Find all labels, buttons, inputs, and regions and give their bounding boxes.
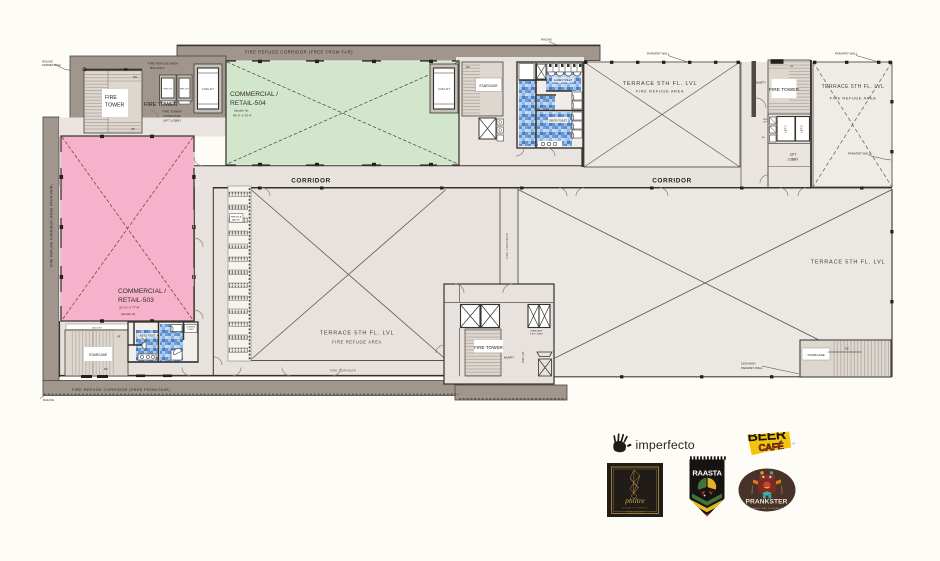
svg-text:TM: TM	[792, 443, 795, 446]
svg-text:LOBBY: LOBBY	[788, 158, 800, 162]
svg-text:LADIES TOILET: LADIES TOILET	[554, 79, 573, 82]
svg-text:RAILING: RAILING	[541, 38, 552, 42]
svg-text:ABOVE: ABOVE	[232, 219, 240, 222]
svg-text:imperfecto: imperfecto	[636, 438, 695, 452]
svg-text:STAIRCASE: STAIRCASE	[163, 114, 180, 118]
svg-text:DN: DN	[845, 348, 849, 351]
svg-text:FIRE TOWER: FIRE TOWER	[769, 87, 799, 93]
svg-text:STAIRCASE: STAIRCASE	[530, 330, 543, 333]
svg-text:RAASTA: RAASTA	[692, 469, 722, 478]
svg-text:CAR LIFT: CAR LIFT	[202, 87, 214, 91]
svg-text:/LIFT LOBBY: /LIFT LOBBY	[530, 334, 544, 336]
svg-text:TERRACE 5TH FL. LVL: TERRACE 5TH FL. LVL	[811, 260, 886, 266]
svg-text:DN: DN	[466, 66, 470, 69]
svg-text:1500 HIGH: 1500 HIGH	[741, 362, 755, 366]
svg-text:GENTS TOILET: GENTS TOILET	[549, 120, 567, 123]
svg-text:PARAPET WALL: PARAPET WALL	[835, 52, 858, 56]
svg-text:DN: DN	[133, 75, 137, 79]
svg-text:FIRE LIFT: FIRE LIFT	[522, 351, 525, 363]
svg-text:FIRE CORRIDOR: FIRE CORRIDOR	[330, 369, 356, 373]
svg-text:RETAIL-504: RETAIL-504	[230, 100, 266, 107]
svg-text:UP: UP	[131, 127, 135, 131]
svg-text:RETAIL-503: RETAIL-503	[118, 297, 154, 304]
svg-text:FIRE CORRIDOR: FIRE CORRIDOR	[505, 233, 509, 259]
svg-text:THEMED BAR EXCHANGE: THEMED BAR EXCHANGE	[750, 507, 783, 510]
svg-text:(double ht): (double ht)	[121, 312, 135, 316]
svg-text:FIRE REFUGE CORRIDOR (FREE FR: FIRE REFUGE CORRIDOR (FREE FROM FAIR)	[50, 184, 54, 267]
svg-text:LIFT-2: LIFT-2	[800, 125, 804, 133]
svg-text:PARAPET WALL: PARAPET WALL	[741, 366, 763, 370]
svg-text:(double ht): (double ht)	[234, 109, 248, 113]
svg-text:/LIFT LOBBY: /LIFT LOBBY	[163, 119, 181, 123]
svg-text:RAILING: RAILING	[43, 398, 54, 402]
svg-text:PRANKSTER: PRANKSTER	[746, 499, 788, 506]
svg-text:TERRACE 5TH FL. LVL: TERRACE 5TH FL. LVL	[320, 331, 395, 337]
svg-text:TOILET: TOILET	[187, 329, 194, 331]
svg-text:LADIES TOILET: LADIES TOILET	[139, 335, 156, 338]
svg-text:MUMTY: MUMTY	[504, 356, 514, 360]
svg-text:1000MM HIGH: 1000MM HIGH	[42, 63, 61, 67]
svg-text:STAIRCASE: STAIRCASE	[89, 353, 108, 357]
svg-text:STAIRCASE: STAIRCASE	[807, 353, 824, 357]
svg-text:FIRE REFUGE CORRIDOR (FREE: FIRE REFUGE CORRIDOR (FREE FROM FAR)	[245, 49, 353, 54]
svg-text:FIRE REFUGE AREA: FIRE REFUGE AREA	[830, 96, 877, 101]
svg-text:UP: UP	[117, 336, 121, 339]
svg-text:STAIRCASE: STAIRCASE	[479, 84, 498, 88]
svg-text:PARAPET WALL: PARAPET WALL	[848, 152, 871, 156]
svg-text:FINE DRINKS: FINE DRINKS	[626, 512, 643, 514]
svg-text:FIRE TOWER: FIRE TOWER	[144, 102, 178, 108]
svg-text:LIFT: LIFT	[790, 153, 797, 157]
svg-text:MUMTY: MUMTY	[755, 81, 766, 85]
svg-text:PARAPET WALL: PARAPET WALL	[647, 52, 670, 56]
svg-text:DN: DN	[104, 368, 108, 371]
svg-text:FIRE REFUGE AREA: FIRE REFUGE AREA	[332, 340, 382, 345]
svg-text:CORRIDOR: CORRIDOR	[652, 178, 692, 185]
svg-text:TERRACE 5TH FL. LVL: TERRACE 5TH FL. LVL	[623, 81, 698, 87]
svg-text:COMMERCIAL /: COMMERCIAL /	[118, 288, 166, 295]
svg-text:HOUSE OF SPIRITS: HOUSE OF SPIRITS	[622, 508, 647, 510]
svg-text:64'-0" X 43'-4": 64'-0" X 43'-4"	[233, 114, 252, 118]
svg-text:TOWER: TOWER	[105, 103, 124, 109]
svg-text:TERRACE 5TH FL. LVL: TERRACE 5TH FL. LVL	[822, 84, 885, 90]
svg-text:BALCONY: BALCONY	[150, 66, 165, 70]
svg-text:FIRE REFUGE CORRIDOR (FREE: FIRE REFUGE CORRIDOR (FREE FROM FAIR)	[72, 387, 171, 392]
svg-text:FIRE LIFT: FIRE LIFT	[180, 89, 190, 91]
svg-text:BALCONY: BALCONY	[92, 326, 102, 329]
svg-text:FIRE LIFT: FIRE LIFT	[163, 89, 173, 91]
svg-text:COMMERCIAL /: COMMERCIAL /	[230, 91, 278, 98]
svg-text:FIRE TOWER: FIRE TOWER	[162, 110, 182, 114]
svg-text:DN: DN	[790, 66, 794, 68]
svg-text:FIRE TOWER: FIRE TOWER	[474, 345, 503, 350]
svg-text:CORRIDOR: CORRIDOR	[291, 178, 331, 185]
svg-text:philtre: philtre	[624, 496, 645, 505]
svg-text:CAR LIFT: CAR LIFT	[438, 87, 450, 91]
svg-text:FIRE REFUGE AREA: FIRE REFUGE AREA	[636, 89, 684, 94]
svg-text:PERGOLA: PERGOLA	[231, 215, 242, 218]
svg-text:LIFT-1: LIFT-1	[783, 125, 787, 133]
svg-text:FIRE: FIRE	[105, 95, 117, 101]
svg-text:32'-10" X 77'-8": 32'-10" X 77'-8"	[119, 306, 140, 310]
